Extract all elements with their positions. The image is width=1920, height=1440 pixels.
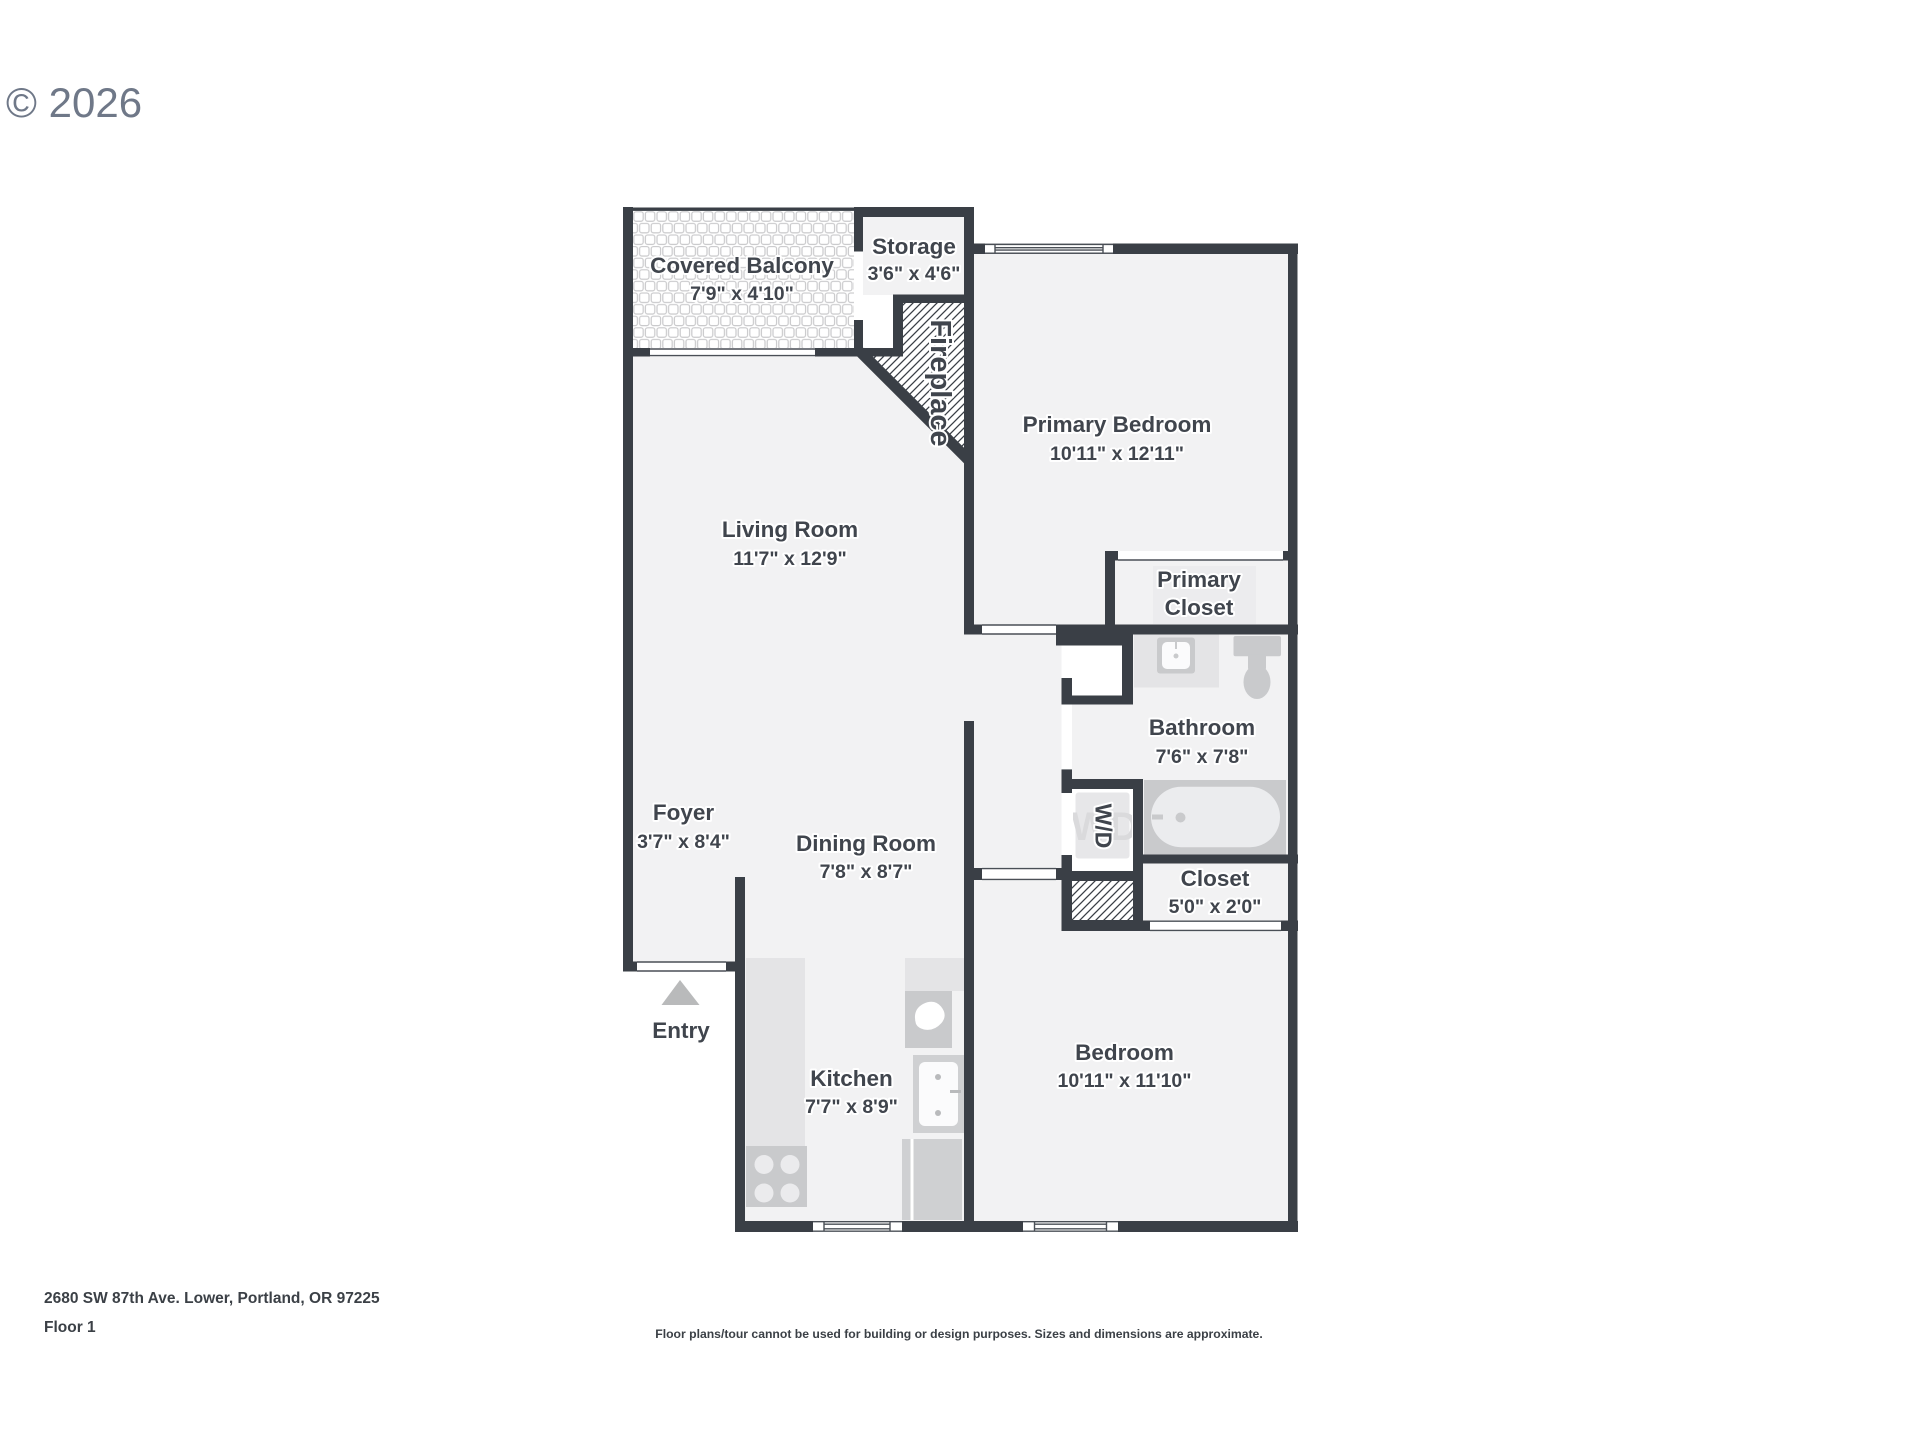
svg-text:3'7" x 8'4": 3'7" x 8'4" — [637, 831, 730, 853]
svg-text:Closet: Closet — [1165, 595, 1234, 620]
svg-text:Foyer: Foyer — [653, 800, 715, 825]
svg-text:© 2026: © 2026 — [6, 79, 142, 126]
svg-text:Bedroom: Bedroom — [1075, 1040, 1174, 1065]
svg-text:7'6" x 7'8": 7'6" x 7'8" — [1156, 746, 1249, 768]
svg-text:Entry: Entry — [652, 1018, 710, 1043]
svg-text:Kitchen: Kitchen — [810, 1066, 893, 1091]
svg-text:7'7" x 8'9": 7'7" x 8'9" — [805, 1096, 898, 1118]
svg-text:Living Room: Living Room — [722, 517, 858, 542]
svg-text:Storage: Storage — [872, 234, 956, 259]
svg-text:Bathroom: Bathroom — [1149, 715, 1255, 740]
svg-text:2680 SW 87th Ave. Lower, Portl: 2680 SW 87th Ave. Lower, Portland, OR 97… — [44, 1290, 380, 1307]
svg-text:7'9" x 4'10": 7'9" x 4'10" — [690, 283, 794, 305]
svg-text:Floor 1: Floor 1 — [44, 1319, 96, 1336]
svg-text:Floor plans/tour cannot be use: Floor plans/tour cannot be used for buil… — [655, 1327, 1262, 1341]
svg-text:Fireplace: Fireplace — [924, 319, 956, 446]
svg-text:W/D: W/D — [1091, 804, 1117, 849]
svg-text:7'8" x 8'7": 7'8" x 8'7" — [820, 861, 913, 883]
svg-text:10'11" x 12'11": 10'11" x 12'11" — [1050, 443, 1184, 465]
svg-text:Primary Bedroom: Primary Bedroom — [1023, 412, 1212, 437]
svg-text:Primary: Primary — [1157, 567, 1241, 592]
svg-text:Dining Room: Dining Room — [796, 831, 936, 856]
svg-text:3'6" x 4'6": 3'6" x 4'6" — [868, 263, 961, 285]
svg-text:Covered Balcony: Covered Balcony — [650, 253, 834, 278]
svg-text:Closet: Closet — [1181, 866, 1250, 891]
svg-text:5'0" x 2'0": 5'0" x 2'0" — [1169, 896, 1262, 918]
svg-text:10'11" x 11'10": 10'11" x 11'10" — [1057, 1070, 1191, 1092]
svg-text:11'7" x 12'9": 11'7" x 12'9" — [733, 548, 846, 570]
